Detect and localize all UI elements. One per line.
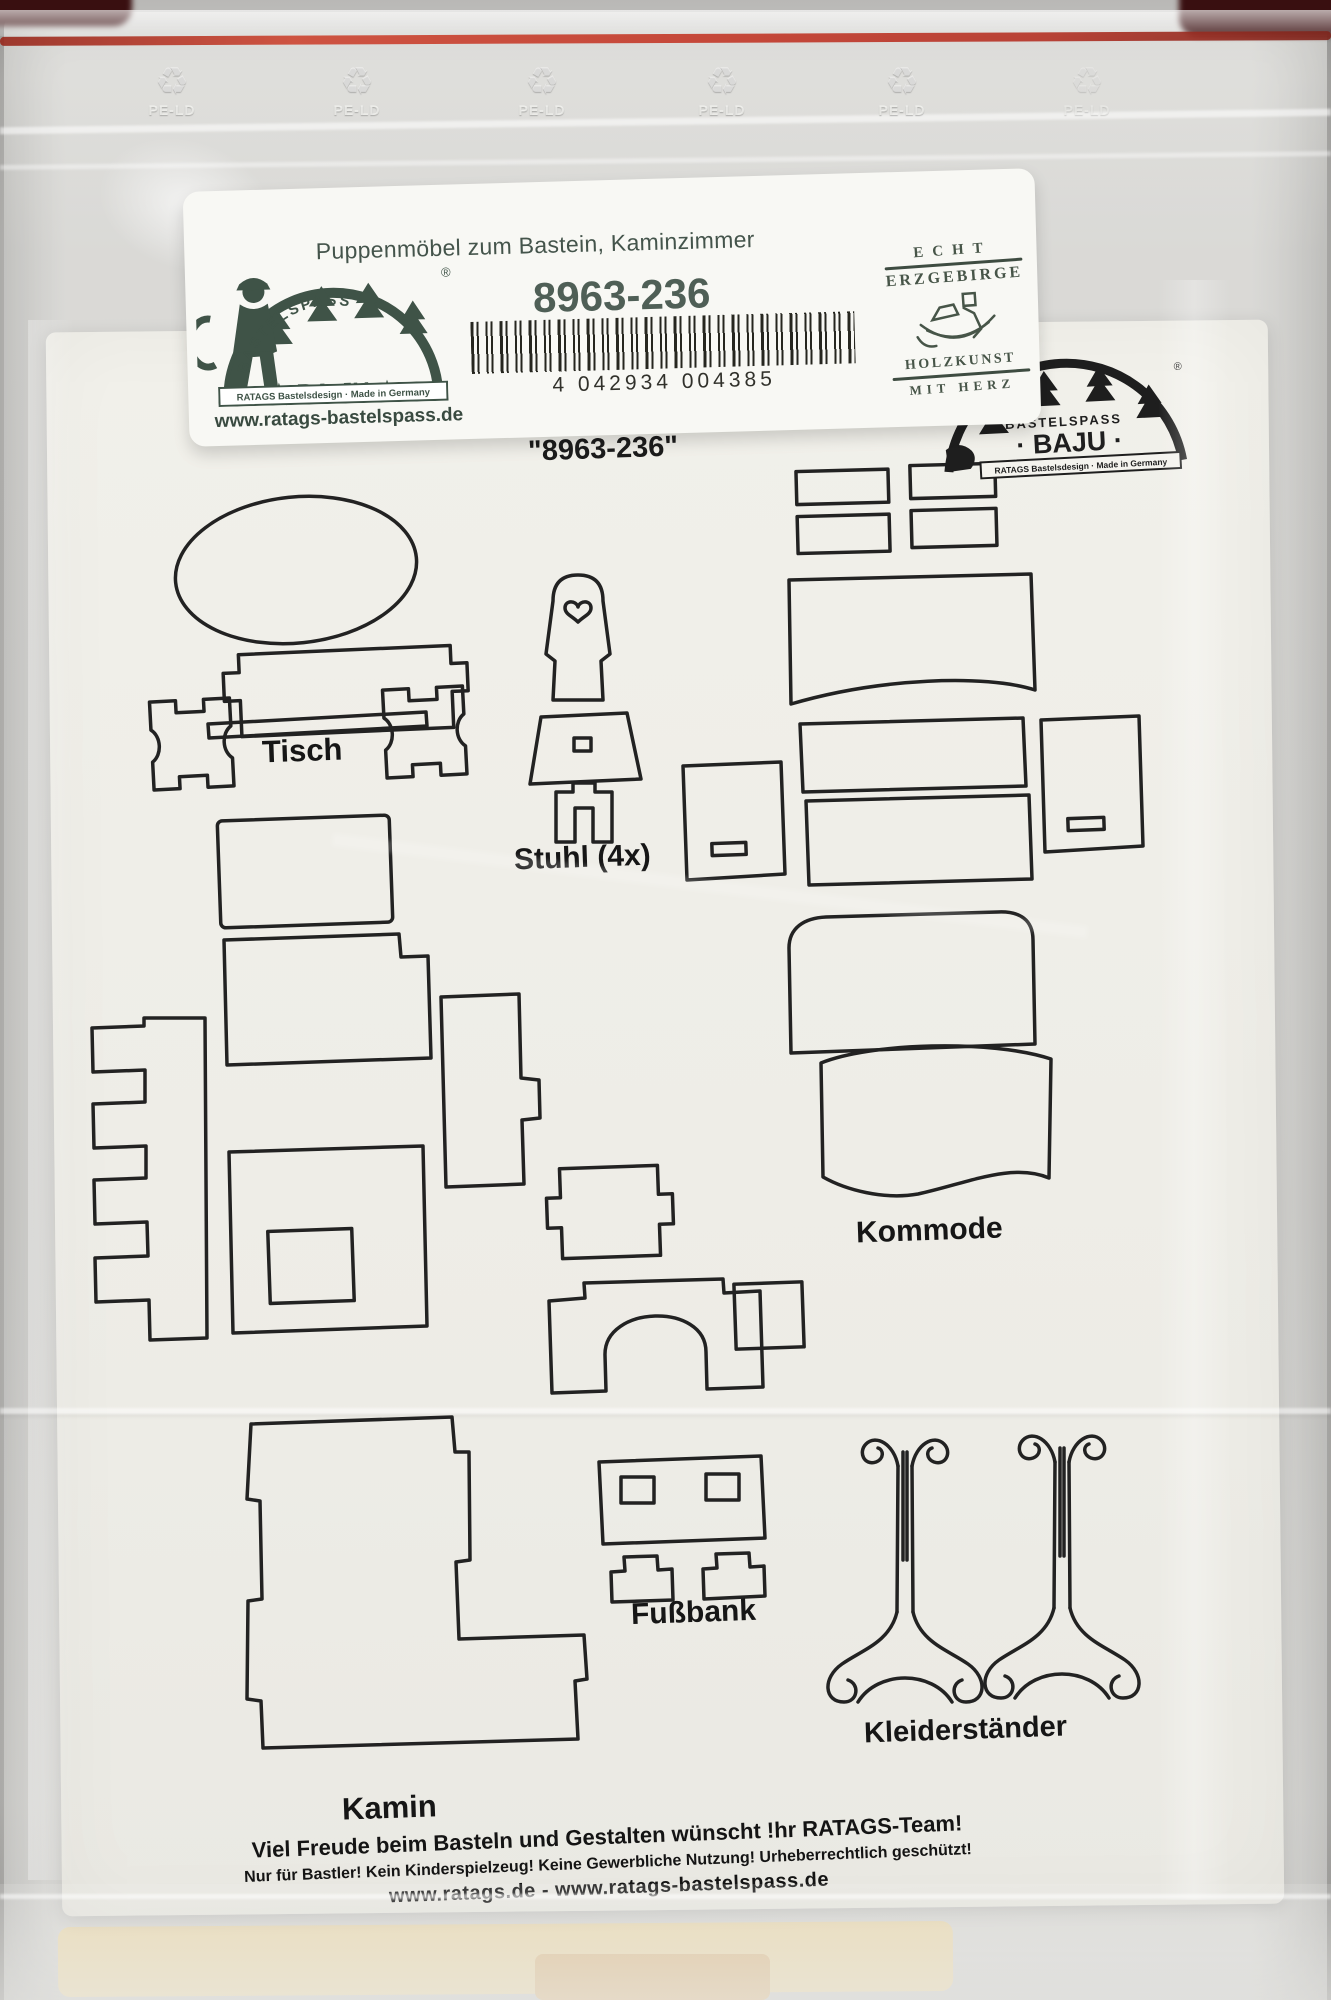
erzgebirge-stamp: ECHT ERZGEBIRGE HOLZKUNST MIT HERZ xyxy=(881,237,1034,400)
recycle-icon: ♻ xyxy=(497,62,587,102)
material-mark: ♻ PE-LD xyxy=(857,62,947,118)
part-label-stuhl: Stuhl (4x) xyxy=(513,839,651,878)
product-photo: Bastelset - Kaminzimmer "8963-236" BASTE… xyxy=(0,0,1331,2000)
material-mark: ♻ PE-LD xyxy=(312,62,402,118)
material-mark: ♻ PE-LD xyxy=(497,62,587,118)
recycle-icon: ♻ xyxy=(312,62,402,102)
recycle-icon: ♻ xyxy=(857,62,947,102)
part-label-fussbank: Fußbank xyxy=(630,1594,756,1632)
recycle-icon: ♻ xyxy=(127,62,217,102)
barcode: 4 042934 004385 xyxy=(470,311,856,400)
part-label-tisch: Tisch xyxy=(261,732,343,771)
registered-icon: ® xyxy=(441,264,451,279)
barcode-bars-icon xyxy=(470,311,855,374)
rocking-figure-icon xyxy=(910,285,1004,355)
material-mark: ♻ PE-LD xyxy=(677,62,767,118)
material-mark: ♻ PE-LD xyxy=(127,62,217,118)
part-label-kamin: Kamin xyxy=(341,1788,437,1827)
bag-bottom-fold xyxy=(0,1894,1331,1899)
product-label: Puppenmöbel zum Bastein, Kaminzimmer 896… xyxy=(183,168,1042,447)
material-mark: ♻ PE-LD xyxy=(1042,62,1132,118)
part-label-kleiderstaender: Kleiderständer xyxy=(863,1710,1067,1750)
part-label-kommode: Kommode xyxy=(855,1211,1003,1250)
registered-icon: ® xyxy=(1173,361,1182,373)
plastic-glare xyxy=(0,1884,1331,2000)
recycle-icon: ♻ xyxy=(1042,62,1132,102)
instruction-sheet xyxy=(46,320,1285,1917)
recycle-icon: ♻ xyxy=(677,62,767,102)
